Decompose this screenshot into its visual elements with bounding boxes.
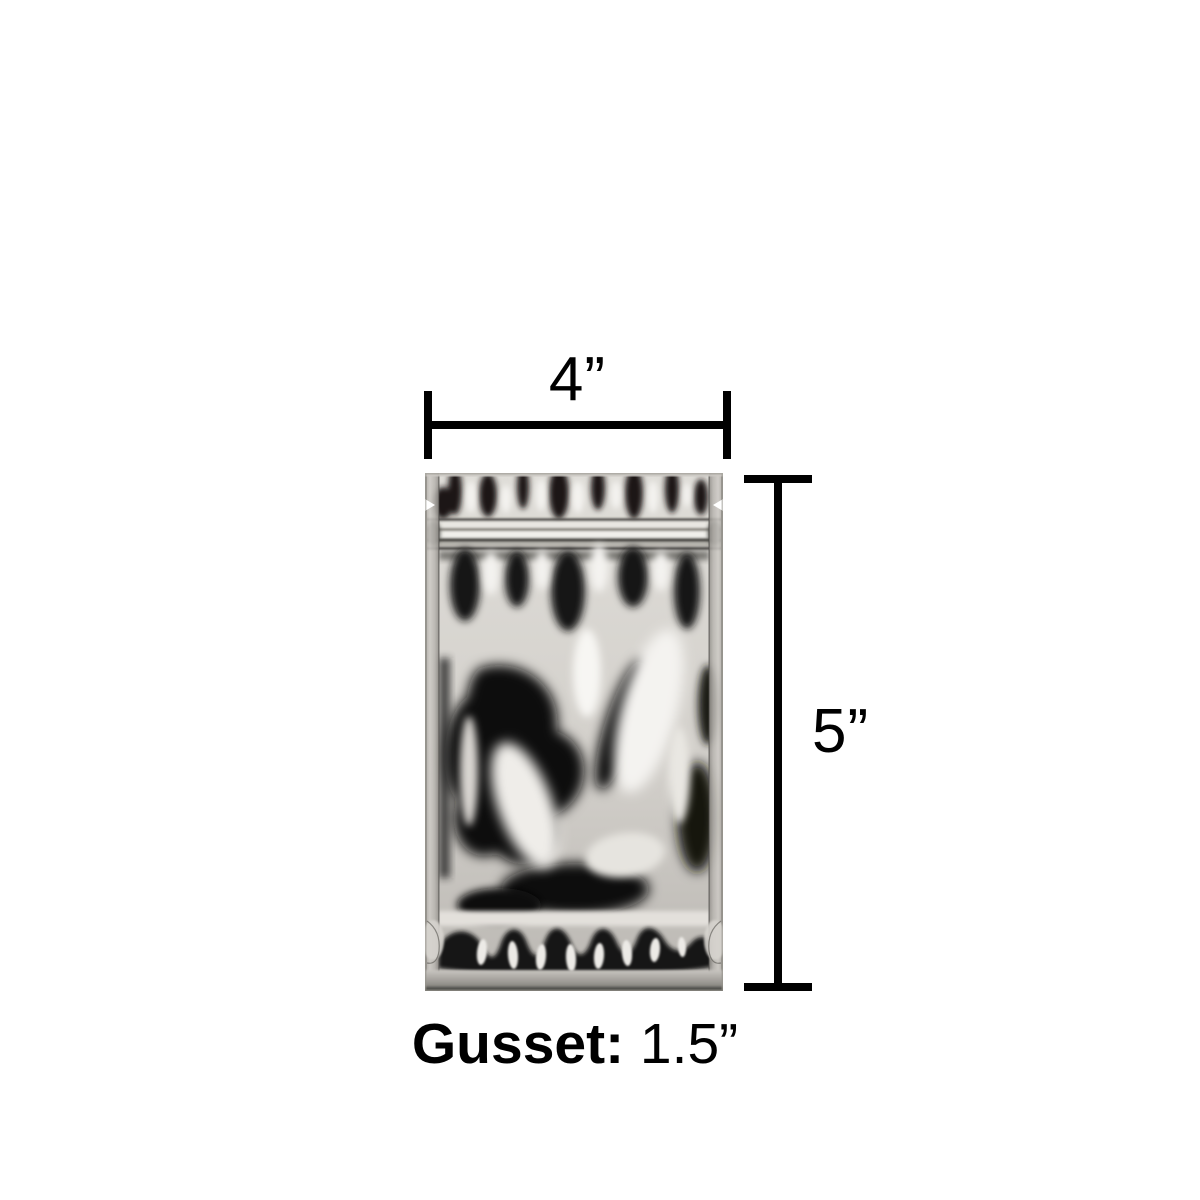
width-dimension-cap-left [424,391,432,459]
product-dimension-figure: 4” 5” Gusset: 1.5” [0,0,1200,1200]
pouch-zipper [425,519,723,550]
width-dimension-cap-right [723,391,731,459]
pouch-photo [425,473,723,991]
width-dimension-line [424,421,731,429]
gusset-caption-value: 1.5” [640,1012,738,1076]
height-dimension-label: 5” [812,701,869,763]
height-dimension-cap-top [744,475,812,483]
gusset-caption-key: Gusset: [412,1012,624,1076]
height-dimension-line [774,475,782,991]
height-dimension-cap-bottom [744,983,812,991]
pouch-illustration [425,473,723,991]
width-dimension-label: 4” [424,349,731,411]
gusset-caption: Gusset: 1.5” [325,1014,825,1074]
